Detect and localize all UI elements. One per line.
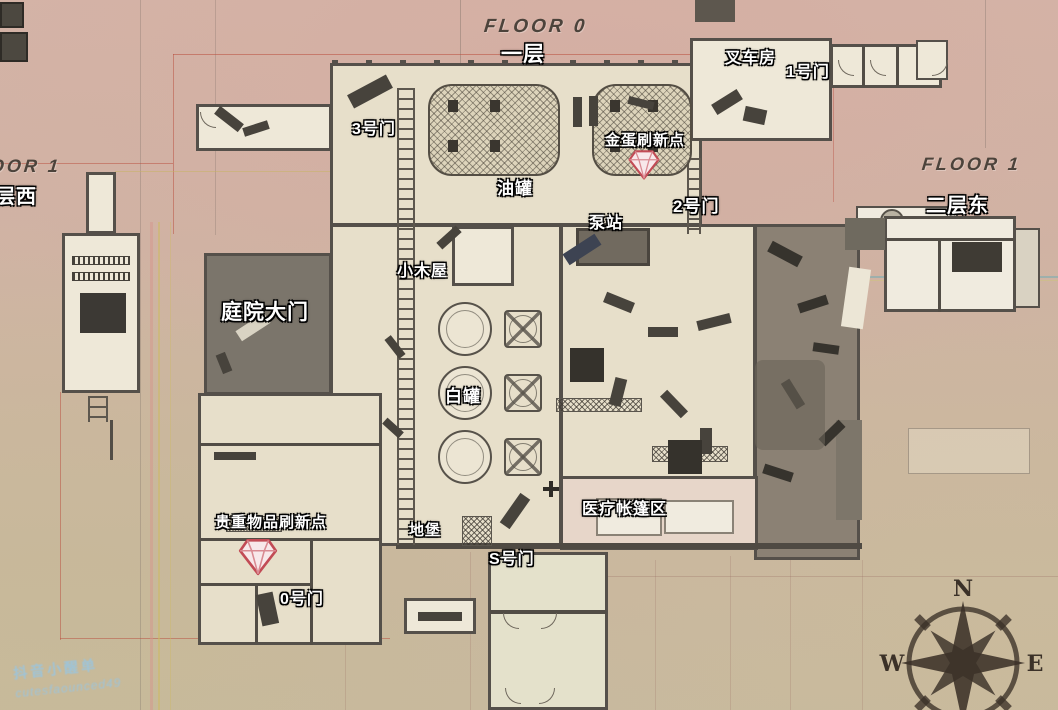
rail-track (397, 88, 415, 545)
machine-block (80, 293, 126, 333)
tank-block (490, 140, 500, 152)
compass-w: W (879, 651, 905, 677)
white-tank-circle (438, 430, 492, 484)
label-medical-tent-area: 医疗帐篷区 (582, 495, 667, 519)
roof-block (845, 218, 885, 250)
cross-marker (543, 487, 559, 491)
floor0-title-cn: 一层 (501, 38, 545, 68)
shelf (589, 96, 598, 126)
room-wood-cabin (452, 226, 514, 286)
tank-block (490, 100, 500, 112)
label-oil-tank: 油罐 (497, 174, 533, 199)
vent-pad (504, 438, 542, 476)
compound-divider (200, 538, 380, 541)
crease-line (985, 0, 986, 148)
shelf-row (72, 272, 130, 281)
road-stripe-yellow (170, 222, 171, 710)
crease-line (730, 556, 731, 710)
compass-n: N (953, 578, 973, 602)
dark-patch (755, 360, 825, 450)
tank-block (448, 140, 458, 152)
label-door-3: 3号门 (352, 115, 396, 139)
east-yard-structure (908, 428, 1030, 474)
corner-room (0, 32, 28, 62)
floor1-east-appendix (1014, 228, 1040, 308)
road-stripe-yellow (158, 222, 160, 710)
tank-block (448, 100, 458, 112)
crease-line (575, 576, 1058, 577)
compound-divider (200, 443, 380, 446)
roof-block (695, 0, 735, 22)
tank-block (610, 100, 620, 112)
gold-egg-spawn-gem-icon (627, 146, 661, 182)
floor1-west-title-en: FLOOR 1 (0, 156, 62, 177)
floor1-west-tower (86, 172, 116, 234)
compass-e: E (1027, 651, 1044, 677)
label-valuables-spawn: 贵重物品刷新点 (215, 511, 327, 532)
floor1-east-title-en: FLOOR 1 (921, 154, 1022, 175)
label-pump-station: 泵站 (589, 209, 623, 233)
dark-room-block (952, 242, 1002, 272)
watermark: 抖音小醒单 cutesfaounced49 (12, 653, 122, 702)
label-door-s: S号门 (489, 545, 535, 569)
crate (648, 327, 678, 337)
gray-block (836, 420, 862, 520)
wall-stub (110, 420, 113, 460)
corridor-doorS (488, 552, 608, 710)
label-forklift-room: 叉车房 (725, 44, 776, 68)
label-bunker: 地堡 (409, 519, 441, 540)
vent-pad (504, 374, 542, 412)
crease-line (140, 0, 141, 710)
crease-line (862, 560, 863, 710)
floor1-west-title-cn: 二层西 (0, 180, 37, 209)
pallet-hatch (556, 398, 642, 412)
floor1-east-title-cn: 二层东 (926, 189, 989, 218)
floor1-east-wall (884, 238, 1016, 241)
table (214, 452, 256, 460)
compass-rose: N W E S (878, 578, 1048, 710)
crease-line (790, 560, 791, 710)
label-courtyard-gate: 庭院大门 (221, 296, 309, 326)
grid-line-red (60, 392, 61, 640)
barrel-cluster (668, 440, 702, 474)
label-door-1: 1号门 (786, 58, 830, 82)
floor1-east-wall (938, 240, 941, 312)
grid-line-red (173, 54, 174, 234)
floor0-title-en: FLOOR 0 (483, 16, 589, 38)
stairs (88, 396, 108, 422)
game-floorplan-map: FLOOR 0 一层 FLOOR 1 二层东 FLOOR 1 二层西 叉车房 1… (0, 0, 1058, 710)
shelf-row (72, 256, 130, 265)
corridor-wall (896, 46, 899, 86)
oil-tank-structure (428, 84, 560, 176)
medical-tent (664, 500, 734, 534)
shelf (573, 97, 582, 127)
corner-room (0, 2, 24, 28)
label-door-2: 2号门 (673, 192, 719, 217)
crease-line (655, 560, 656, 710)
road-stripe-pink (150, 222, 153, 710)
white-tank-circle (438, 302, 492, 356)
valuables-spawn-gem-icon (237, 534, 279, 578)
vent-pad (504, 310, 542, 348)
label-door-0: 0号门 (280, 585, 324, 609)
generator-block (418, 612, 462, 621)
bunker-structure (462, 516, 492, 546)
barrel-cluster (570, 348, 604, 382)
corridor-wall (862, 46, 865, 86)
label-white-tank: 白罐 (445, 382, 481, 407)
label-wood-cabin: 小木屋 (397, 257, 448, 281)
